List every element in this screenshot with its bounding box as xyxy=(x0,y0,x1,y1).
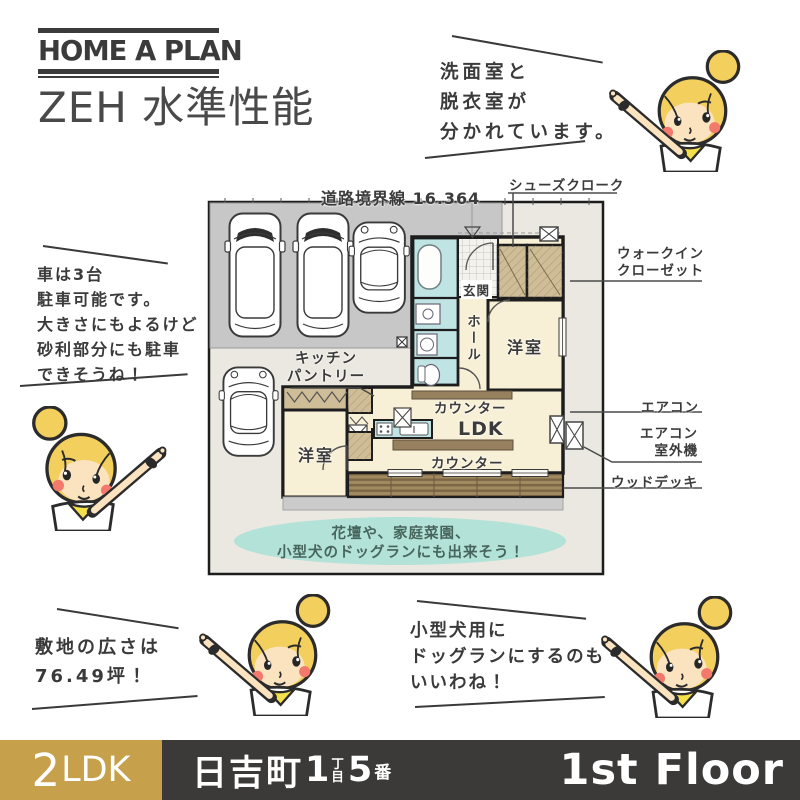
layout-count: 2 xyxy=(31,748,60,793)
callout-wood-deck: ウッドデッキ xyxy=(611,471,698,491)
bubble-line-text: ドッグランにするのも xyxy=(410,644,605,670)
bubble-bottom-left-line-bottom xyxy=(32,695,198,710)
room-label-bedroom-upper: 洋室 xyxy=(507,334,543,358)
bubble-line-text: 敷地の広さは xyxy=(35,633,161,662)
callout-shoe-closet: シューズクローク xyxy=(509,174,624,194)
mascot-girl-mid-left xyxy=(24,406,176,531)
counter-lower-strip xyxy=(393,440,513,450)
bubble-bottom-right-text: 小型犬用に ドッグランにするのも いいわね！ xyxy=(410,618,605,696)
address-town: 日吉町 xyxy=(192,745,303,796)
garden-note: 花壇や、家庭菜園、 小型犬のドッグランにも出来そう！ xyxy=(238,525,564,563)
shoe-closet xyxy=(498,245,527,298)
address: 日吉町 1 丁 目 5 番 xyxy=(192,745,391,796)
callout-line-text: エアコン xyxy=(640,426,698,443)
poster: HOME A PLAN ZEH 水準性能 洗面室と 脱衣室が 分かれています。 … xyxy=(0,0,800,800)
bubble-line-text: 大きさにもよるけど xyxy=(37,312,199,337)
callout-walk-in-closet: ウォークイン クローゼット xyxy=(617,246,704,280)
layout-type: LDK xyxy=(61,753,130,788)
bathtub xyxy=(418,245,441,289)
brand-logo: HOME A PLAN xyxy=(38,28,219,78)
logo-text: HOME A PLAN xyxy=(38,33,215,69)
vanity-sink xyxy=(416,304,440,324)
page-title: ZEH 水準性能 xyxy=(38,74,314,135)
callout-line-text: 室外機 xyxy=(640,443,698,460)
bubble-line-text: 小型犬用に xyxy=(410,618,605,644)
storage-box-icon xyxy=(394,408,411,427)
bubble-line-text: 洗面室と xyxy=(440,58,618,88)
label-line-text: パントリー xyxy=(286,368,366,386)
car-sedan-1 xyxy=(349,222,409,312)
logo-rule-bottom xyxy=(38,69,219,74)
car-sedan-2 xyxy=(219,367,278,455)
footer-bar: 2 LDK 日吉町 1 丁 目 5 番 1st Floor xyxy=(0,740,800,800)
address-chome-top: 丁 xyxy=(331,757,344,771)
room-label-genkan: 玄関 xyxy=(461,280,492,299)
address-lot: 5 xyxy=(348,750,372,790)
stove xyxy=(377,423,392,435)
room-label-ldk: LDK xyxy=(458,418,504,440)
window-icon xyxy=(540,227,558,241)
address-ban: 番 xyxy=(374,758,391,783)
bubble-top-right-text: 洗面室と 脱衣室が 分かれています。 xyxy=(440,58,618,148)
bubble-bottom-right-line-bottom xyxy=(415,696,605,708)
room-label-counter-upper: カウンター xyxy=(434,397,507,417)
bubble-mid-left-text: 車は3台 駐車可能です。 大きさにもよるけど 砂利部分にも駐車 できそうね！ xyxy=(37,262,199,387)
bubble-line-text: 脱衣室が xyxy=(440,88,618,118)
concrete-step xyxy=(283,497,563,510)
address-block: 1 xyxy=(305,750,329,790)
mascot-girl-bottom-right xyxy=(592,596,740,718)
bubble-line-text: 車は3台 xyxy=(37,262,199,287)
address-chome-stack: 丁 目 xyxy=(331,757,344,784)
address-chome-bottom: 目 xyxy=(331,770,344,784)
callout-line-text: ウォークイン xyxy=(617,246,704,263)
room-label-bedroom-lower: 洋室 xyxy=(298,442,334,466)
room-label-counter-lower: カウンター xyxy=(431,452,504,472)
bathroom-column xyxy=(413,238,458,386)
road-boundary-label: 道路境界線 16.364 xyxy=(321,185,480,209)
floor-indicator: 1st Floor xyxy=(560,745,784,795)
boundary-marker-icon xyxy=(397,337,407,347)
car-van-2 xyxy=(293,214,353,337)
footer-dark-bar: 日吉町 1 丁 目 5 番 1st Floor xyxy=(162,740,800,800)
bubble-line-text: 76.49坪！ xyxy=(35,662,161,691)
callout-line-text: クローゼット xyxy=(617,263,704,280)
room-label-kitchen-pantry: キッチン パントリー xyxy=(286,350,366,386)
garden-note-line: 花壇や、家庭菜園、 xyxy=(238,525,564,544)
aircon-indoor-icon xyxy=(550,416,564,443)
walk-in-closet xyxy=(527,245,563,298)
mascot-girl-bottom-left xyxy=(190,594,338,716)
bubble-line-text: 分かれています。 xyxy=(440,118,618,148)
car-van-1 xyxy=(225,214,285,337)
callout-aircon-outdoor: エアコン 室外機 xyxy=(640,426,698,460)
label-line-text: キッチン xyxy=(286,350,366,368)
room-label-hall: ホール xyxy=(462,314,482,364)
bubble-line-text: いいわね！ xyxy=(410,670,605,696)
bubble-line-text: 駐車可能です。 xyxy=(37,287,199,312)
callout-aircon: エアコン xyxy=(641,396,699,416)
bubble-bottom-left-text: 敷地の広さは 76.49坪！ xyxy=(35,633,161,691)
aircon-outdoor-icon xyxy=(566,422,583,449)
bubble-line-text: 砂利部分にも駐車 xyxy=(37,337,199,362)
layout-badge: 2 LDK xyxy=(0,740,162,800)
garden-note-line: 小型犬のドッグランにも出来そう！ xyxy=(238,544,564,563)
mascot-girl-top-right xyxy=(600,50,748,172)
